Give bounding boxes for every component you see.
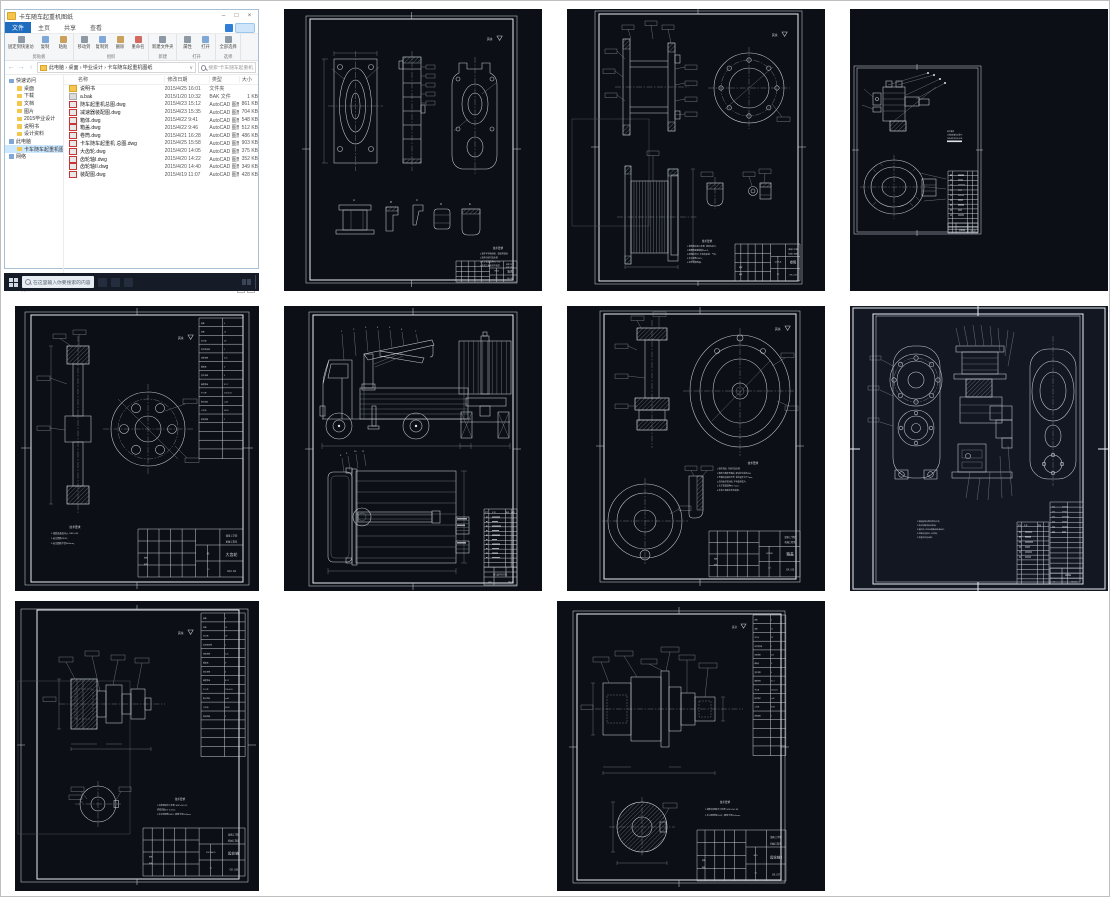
file-row[interactable]: 减速器装配图.dwg 2015/4/23 15:35 AutoCAD 图形 70…: [64, 108, 258, 116]
ribbon-tabs: 文件 主页 共享 查看: [5, 22, 258, 34]
file-icon: [69, 117, 77, 124]
svg-text:4: 4: [771, 620, 772, 622]
taskbar-search[interactable]: 在这里输入你要搜索的内容: [22, 276, 94, 288]
detail-label: C: [416, 198, 418, 202]
ribbon-button[interactable]: 新建文件夹: [151, 35, 174, 51]
part-name: 卷筒: [790, 260, 796, 265]
tab-file[interactable]: 文件: [5, 22, 31, 33]
notes-heading: 技术要求: [748, 461, 759, 465]
forward-icon[interactable]: →: [17, 64, 25, 71]
svg-text:0: 0: [224, 375, 225, 377]
svg-text:0.25: 0.25: [771, 655, 774, 657]
notes-heading: 技术要求: [720, 800, 731, 804]
tray-icon[interactable]: [247, 279, 251, 285]
svg-text:z=40: z=40: [225, 698, 229, 700]
ribbon-group-clipboard: 固定到快速访问复制粘贴 剪贴板: [5, 34, 74, 60]
file-explorer-screenshot: 卡车随车起重机图纸 – □ × 文件 主页 共享 查看 固定到快速访问复制粘贴 …: [4, 9, 259, 291]
svg-text:8-7-7: 8-7-7: [771, 681, 775, 683]
material: Q235-A: [775, 261, 782, 264]
ribbon-toggle-icon[interactable]: [235, 23, 255, 33]
svg-text:0.25: 0.25: [225, 654, 229, 656]
taskbar-app-icon[interactable]: [124, 278, 133, 287]
ribbon-button[interactable]: 属性: [179, 35, 195, 51]
ribbon-button[interactable]: 移动到: [76, 35, 92, 51]
svg-text:4: 4: [225, 618, 226, 620]
minimize-button[interactable]: –: [217, 10, 230, 22]
folder-icon: [17, 109, 22, 114]
ribbon-button[interactable]: 全部选择: [218, 35, 237, 51]
material: HT200: [494, 271, 499, 273]
cad-sheet-housing: A B C D E 其余 技术要求 1.铸件不得有砂眼、裂纹等缺陷; 2.铸件应…: [284, 9, 542, 291]
ribbon-group-select: 全部选择 选择: [216, 34, 240, 60]
ribbon-group-label: 打开: [179, 54, 213, 60]
explorer-titlebar[interactable]: 卡车随车起重机图纸 – □ ×: [5, 10, 258, 22]
drawing-number: GK.I.00: [1071, 582, 1077, 584]
folder-icon: [17, 86, 22, 91]
sidebar-item[interactable]: 网络: [5, 153, 63, 161]
ribbon-button-icon: [159, 36, 166, 43]
column-type[interactable]: 类型: [210, 76, 240, 83]
file-icon: [69, 101, 77, 108]
svg-text:170±0.03: 170±0.03: [225, 689, 232, 691]
scale: 1:1: [754, 873, 757, 875]
taskbar: 在这里输入你要搜索的内容: [4, 273, 259, 291]
ribbon-group-organize: 移动到复制到删除重命名 组织: [74, 34, 149, 60]
svg-text:其余: 其余: [487, 37, 493, 41]
notes-heading: 技术要求: [702, 239, 713, 243]
search-icon: [25, 279, 31, 285]
address-bar[interactable]: 此电脑 › 桌面 › 毕业设计 › 卡车随车起重机图纸 ∨: [37, 62, 196, 73]
svg-text:170±0.03: 170±0.03: [771, 689, 778, 691]
scale: 1:5: [1053, 582, 1055, 584]
ribbon-button-icon: [99, 36, 106, 43]
tabs-spacer: [109, 22, 225, 33]
cad-sheet-assembly-small: 技术要求 1.装配前清洗各零件; 2.转动应灵活无卡滞。 装配图 GK.I.09: [850, 9, 1108, 291]
back-icon[interactable]: ←: [7, 64, 15, 71]
drawing-number: GK.I.09: [970, 231, 975, 233]
ribbon-button-icon: [60, 36, 67, 43]
ribbon-group-label: 选择: [218, 54, 237, 60]
svg-text:2.转动应灵活无卡滞。: 2.转动应灵活无卡滞。: [947, 137, 964, 140]
up-icon[interactable]: ↑: [27, 64, 35, 71]
svg-text:20°: 20°: [225, 636, 228, 638]
sidebar-item[interactable]: 快速访问: [5, 77, 63, 85]
drawing-number: GK.I.07: [772, 874, 781, 877]
file-icon: [69, 148, 77, 155]
ribbon-button-icon: [42, 36, 49, 43]
column-size[interactable]: 大小: [240, 76, 258, 83]
chevron-down-icon[interactable]: ∨: [189, 65, 193, 71]
part-name: 齿轮轴II: [770, 855, 782, 860]
folder-icon: [17, 147, 22, 152]
ribbon-button-icon: [184, 36, 191, 43]
svg-text:其余: 其余: [772, 33, 778, 37]
folder-icon: [17, 124, 22, 129]
file-row[interactable]: 卷筒.dwg 2015/4/21 16:28 AutoCAD 图形 486 KB: [64, 132, 258, 140]
part-name: 齿轮轴I: [228, 851, 240, 856]
sidebar-item[interactable]: 图片: [5, 107, 63, 115]
close-button[interactable]: ×: [243, 10, 256, 22]
svg-text:审核: 审核: [149, 862, 153, 865]
ribbon: 固定到快速访问复制粘贴 剪贴板 移动到复制到删除重命名 组织 新建文件夹 新建 …: [5, 34, 258, 61]
svg-text:z=40: z=40: [224, 401, 228, 403]
material: HT200: [766, 553, 773, 555]
folder-icon: [17, 94, 22, 99]
folder-icon: [17, 101, 22, 106]
file-row[interactable]: 箱体.dwg 2015/4/22 9:41 AutoCAD 图形 548 KB: [64, 116, 258, 124]
svg-text:1: 1: [225, 645, 226, 647]
sidebar-item[interactable]: 此电脑: [5, 138, 63, 146]
file-row[interactable]: 随车起重机总图.dwg 2015/4/23 15:12 AutoCAD 图形 8…: [64, 101, 258, 109]
svg-text:13: 13: [771, 628, 773, 630]
notes-heading: 技术要求: [69, 525, 80, 529]
ribbon-button-icon: [202, 36, 209, 43]
ribbon-buttons: 移动到复制到删除重命名: [76, 35, 146, 54]
ribbon-group-label: 新建: [151, 54, 174, 60]
svg-text:1: 1: [771, 646, 772, 648]
part-name: 箱体: [507, 269, 513, 273]
cad-sheet-gear-shaft-1: 模数4 齿数13 压力角20° 齿顶高系数1 顶隙系数0.25 螺旋角0° 变位…: [15, 601, 259, 891]
help-icon[interactable]: [225, 24, 233, 32]
detail-label: E: [469, 202, 471, 206]
folder-icon: [9, 139, 14, 144]
tray-icon[interactable]: [242, 279, 246, 285]
scale: 1:20: [488, 582, 491, 584]
ribbon-button[interactable]: 粘贴: [55, 35, 71, 51]
taskbar-app-icon[interactable]: [111, 278, 120, 287]
svg-text:30.85: 30.85: [224, 410, 229, 412]
file-icon: [69, 85, 77, 92]
maximize-button[interactable]: □: [230, 10, 243, 22]
file-icon: [69, 109, 77, 116]
drawing-number: GK.I.02: [507, 278, 513, 280]
sidebar-item[interactable]: 文档: [5, 100, 63, 108]
drawing-number: GK.I.05: [786, 569, 795, 572]
svg-text:其余: 其余: [775, 327, 781, 331]
address-row: ← → ↑ 此电脑 › 桌面 › 毕业设计 › 卡车随车起重机图纸 ∨ 搜索"卡…: [5, 61, 258, 75]
svg-text:20°: 20°: [224, 340, 227, 342]
folder-icon: [7, 12, 16, 20]
screenshot-collage: 卡车随车起重机图纸 – □ × 文件 主页 共享 查看 固定到快速访问复制粘贴 …: [0, 0, 1110, 897]
svg-text:0°: 0°: [224, 366, 226, 368]
ribbon-group-label: 剪贴板: [7, 54, 71, 60]
folder-icon: [17, 117, 22, 122]
file-icon: [69, 93, 77, 100]
file-row[interactable]: 大齿轮.dwg 2015/4/20 14:05 AutoCAD 图形 375 K…: [64, 147, 258, 155]
ribbon-group-label: 组织: [76, 54, 146, 60]
svg-text:0: 0: [225, 671, 226, 673]
detail-label: A: [353, 198, 355, 202]
detail-label: B: [390, 200, 392, 204]
file-row[interactable]: a.bak 2015/1/20 10:32 BAK 文件 1 KB: [64, 93, 258, 101]
svg-text:其余: 其余: [178, 631, 184, 635]
part-name: 箱盖: [786, 552, 794, 557]
sidebar-item[interactable]: 卡车随车起重机图纸: [5, 145, 63, 153]
ribbon-button-icon: [225, 36, 232, 43]
ribbon-group-new: 新建文件夹 新建: [149, 34, 177, 60]
file-icon: [69, 132, 77, 139]
ribbon-buttons: 全部选择: [218, 35, 237, 54]
drawing-number: GK.I.04: [227, 569, 236, 573]
ribbon-button[interactable]: 打开: [197, 35, 213, 51]
ribbon-button[interactable]: 删除: [112, 35, 128, 51]
folder-icon: [40, 65, 47, 71]
material: 40Cr: [753, 854, 758, 857]
svg-text:4: 4: [224, 323, 225, 325]
file-icon: [69, 124, 77, 131]
drawing-number: GK.I.03: [789, 275, 797, 277]
sidebar-item[interactable]: 桌面: [5, 85, 63, 93]
folder-icon: [9, 154, 14, 159]
svg-text:20°: 20°: [771, 637, 774, 639]
svg-text:0: 0: [771, 672, 772, 674]
scale: 1:2: [496, 278, 498, 280]
file-rows: 说明书 2015/4/25 16:01 文件夹 a.bak 2015/1/20 …: [64, 85, 258, 179]
tab-view[interactable]: 查看: [83, 22, 109, 33]
file-row[interactable]: 齿轮轴I.dwg 2015/4/20 14:22 AutoCAD 图形 352 …: [64, 155, 258, 163]
file-row[interactable]: 装配图.dwg 2015/4/19 11:07 AutoCAD 图形 428 K…: [64, 171, 258, 179]
ribbon-buttons: 固定到快速访问复制粘贴: [7, 35, 71, 54]
svg-text:1: 1: [224, 349, 225, 351]
folder-icon: [17, 132, 22, 137]
taskbar-app-icon[interactable]: [98, 278, 107, 287]
cad-sheet-reducer: 1.装配前所有零件清洗干净; 2.啮合侧隙用铅丝检验; 3.箱内注入N150润滑…: [850, 306, 1108, 591]
search-icon: [201, 65, 206, 71]
ribbon-button[interactable]: 重命名: [130, 35, 146, 51]
file-row[interactable]: 齿轮轴II.dwg 2015/4/20 14:40 AutoCAD 图形 349…: [64, 163, 258, 171]
svg-text:其余: 其余: [732, 625, 738, 629]
ribbon-button[interactable]: 复制: [37, 35, 53, 51]
ribbon-buttons: 新建文件夹: [151, 35, 174, 54]
explorer-body: 快速访问 桌面 下载 文档 图片 2015毕业设计: [5, 75, 258, 284]
cad-sheet-gear-shaft-2: 模数4 齿数13 压力角20° 齿顶高系数1 顶隙系数0.25 螺旋角0° 变位…: [557, 601, 825, 891]
cad-sheet-big-gear: 模数4 齿数13 压力角20° 齿顶高系数1 顶隙系数0.25 螺旋角0° 变位…: [15, 306, 259, 591]
scale: 1:1: [209, 868, 212, 870]
svg-text:0°: 0°: [225, 662, 227, 664]
notes-heading: 技术要求: [175, 797, 186, 801]
cad-sheet-cover: 技术要求 1.铸件清砂, 并经时效处理; 2.箱盖与箱体合箱后, 配钻定位销孔Φ…: [567, 306, 825, 591]
svg-text:2: 2: [225, 716, 226, 718]
material: 20CrMnTi: [206, 851, 216, 854]
sidebar-item[interactable]: 下载: [5, 92, 63, 100]
file-list: 名称 修改日期 类型 大小 说明书 2015/4/25 16:01 文件夹 a.…: [64, 75, 258, 284]
ribbon-buttons: 属性打开: [179, 35, 213, 54]
start-button[interactable]: [9, 278, 18, 287]
column-name[interactable]: 名称: [64, 76, 165, 83]
tab-home[interactable]: 主页: [31, 22, 57, 33]
window-title: 卡车随车起重机图纸: [19, 12, 217, 21]
file-row[interactable]: 卡车随车起重机 总图.dwg 2015/4/25 15:58 AutoCAD 图…: [64, 140, 258, 148]
ribbon-button-icon: [117, 36, 124, 43]
scale: 1:2: [777, 274, 780, 276]
part-name: 大齿轮: [226, 551, 238, 557]
list-header: 名称 修改日期 类型 大小: [64, 75, 258, 85]
search-input[interactable]: 搜索"卡车随车起重机图纸": [198, 62, 256, 73]
svg-text:2: 2: [771, 715, 772, 717]
svg-text:8-7-7: 8-7-7: [224, 384, 228, 386]
explorer-window: 卡车随车起重机图纸 – □ × 文件 主页 共享 查看 固定到快速访问复制粘贴 …: [4, 9, 259, 269]
svg-text:0.25: 0.25: [224, 358, 228, 360]
sidebar-item[interactable]: 2015毕业设计: [5, 115, 63, 123]
ribbon-button[interactable]: 固定到快速访问: [7, 35, 35, 51]
drawing-number: GK.I.01: [508, 582, 514, 584]
sidebar-item[interactable]: 说明书: [5, 123, 63, 131]
svg-text:8-7-7: 8-7-7: [225, 680, 229, 682]
drawing-number: GK.I.06: [230, 869, 239, 872]
svg-text:30.85: 30.85: [225, 707, 230, 709]
file-row[interactable]: 说明书 2015/4/25 16:01 文件夹: [64, 85, 258, 93]
file-row[interactable]: 箱盖.dwg 2015/4/22 9:46 AutoCAD 图形 512 KB: [64, 124, 258, 132]
svg-text:审核: 审核: [144, 563, 148, 566]
svg-text:13: 13: [225, 627, 227, 629]
file-icon: [69, 163, 77, 170]
ribbon-button-icon: [18, 36, 25, 43]
svg-text:30.85: 30.85: [771, 707, 775, 709]
svg-text:1.装配前清洗各零件;: 1.装配前清洗各零件;: [947, 134, 963, 137]
svg-text:170±0.03: 170±0.03: [224, 393, 231, 395]
show-desktop-button[interactable]: [255, 275, 259, 289]
svg-text:制图: 制图: [144, 557, 148, 560]
folder-icon: [9, 79, 14, 84]
cad-sheet-drum: 其余 技术要求 1.卷筒焊后退火处理, 消除内应力; 2.绳槽表面粗糙度Ra6.…: [567, 9, 825, 291]
svg-text:z=40: z=40: [771, 698, 775, 700]
svg-text:2: 2: [224, 419, 225, 421]
sidebar-item[interactable]: 设计资料: [5, 130, 63, 138]
file-icon: [69, 171, 77, 178]
breadcrumb[interactable]: 此电脑 › 桌面 › 毕业设计 › 卡车随车起重机图纸: [49, 64, 187, 71]
ribbon-button-icon: [135, 36, 142, 43]
column-date[interactable]: 修改日期: [165, 76, 209, 83]
nav-pane: 快速访问 桌面 下载 文档 图片 2015毕业设计: [5, 75, 64, 284]
svg-text:13: 13: [224, 332, 226, 334]
file-icon: [69, 156, 77, 163]
file-icon: [69, 140, 77, 147]
ribbon-group-open: 属性打开 打开: [177, 34, 216, 60]
ribbon-button-icon: [81, 36, 88, 43]
notes-heading: 技术要求: [493, 246, 504, 250]
cad-sheet-truck-crane: 1 2 3 4 5 6 7: [284, 306, 542, 591]
svg-text:制图: 制图: [149, 855, 153, 858]
detail-label: D: [440, 202, 442, 206]
scale: 1:2: [768, 568, 771, 570]
tab-share[interactable]: 共享: [57, 22, 83, 33]
svg-text:其余: 其余: [178, 336, 184, 340]
ribbon-button[interactable]: 复制到: [94, 35, 110, 51]
